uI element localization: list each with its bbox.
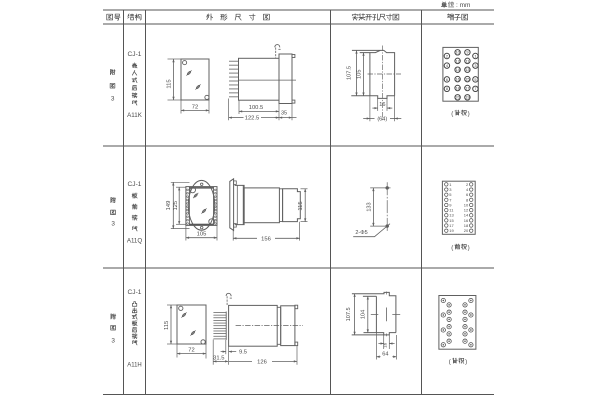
svg-text:35: 35 <box>281 110 287 116</box>
svg-text:8: 8 <box>446 86 448 91</box>
svg-text:5: 5 <box>474 77 476 82</box>
svg-text:9: 9 <box>466 50 468 55</box>
svg-text:(: ( <box>451 110 454 117</box>
svg-text:CJ-1: CJ-1 <box>128 289 142 296</box>
svg-text:125: 125 <box>173 201 179 211</box>
svg-text:72: 72 <box>192 104 198 110</box>
svg-text:3: 3 <box>111 95 115 102</box>
svg-text:3: 3 <box>474 63 476 68</box>
svg-text:18: 18 <box>455 85 459 90</box>
svg-text:156: 156 <box>261 236 271 242</box>
svg-text:): ) <box>468 110 470 117</box>
svg-text:107.5: 107.5 <box>346 307 352 321</box>
svg-text:7: 7 <box>474 86 476 91</box>
svg-text:105: 105 <box>356 70 362 79</box>
svg-text:13: 13 <box>465 67 469 72</box>
svg-text:: mm: : mm <box>456 2 470 9</box>
svg-text:17: 17 <box>465 85 469 90</box>
svg-text:20: 20 <box>464 228 469 233</box>
svg-text:A11H: A11H <box>127 363 142 369</box>
svg-text:107.5: 107.5 <box>346 66 352 80</box>
svg-text:64: 64 <box>382 351 388 357</box>
svg-text:(: ( <box>449 358 452 365</box>
svg-text:3: 3 <box>111 220 115 227</box>
svg-text:105: 105 <box>197 232 207 238</box>
svg-text:): ) <box>468 244 470 251</box>
svg-text:CJ-1: CJ-1 <box>128 51 142 58</box>
svg-text:9.5: 9.5 <box>239 350 247 356</box>
svg-text:19: 19 <box>449 228 454 233</box>
svg-text:16: 16 <box>383 342 388 348</box>
svg-text:126: 126 <box>257 359 267 365</box>
svg-text:31.5: 31.5 <box>213 356 224 362</box>
svg-text:2: 2 <box>446 53 448 58</box>
svg-text:2-Φ5: 2-Φ5 <box>355 230 367 236</box>
svg-text:122.5: 122.5 <box>245 116 260 122</box>
svg-text:CJ-1: CJ-1 <box>128 181 142 188</box>
svg-text:(: ( <box>451 244 454 251</box>
svg-text:115: 115 <box>298 201 304 210</box>
svg-text:133: 133 <box>366 202 372 211</box>
svg-text:(64): (64) <box>377 117 387 123</box>
svg-text:16: 16 <box>455 77 459 82</box>
svg-text:16: 16 <box>379 102 385 108</box>
svg-text:15: 15 <box>465 77 469 82</box>
svg-text:104: 104 <box>361 310 367 319</box>
svg-text:72: 72 <box>188 348 194 354</box>
svg-text:1: 1 <box>474 53 476 58</box>
svg-text:100.5: 100.5 <box>249 105 264 111</box>
svg-text:6: 6 <box>446 77 448 82</box>
svg-text:3: 3 <box>111 338 115 345</box>
svg-text:): ) <box>465 358 467 365</box>
svg-text:A11K: A11K <box>127 112 143 119</box>
svg-text:115: 115 <box>166 79 172 88</box>
svg-text:149: 149 <box>166 201 172 211</box>
svg-text:A11Q: A11Q <box>127 237 143 244</box>
svg-text:11: 11 <box>465 58 469 63</box>
svg-text:115: 115 <box>164 321 170 330</box>
svg-text:19: 19 <box>465 95 469 100</box>
svg-text:12: 12 <box>455 58 459 63</box>
